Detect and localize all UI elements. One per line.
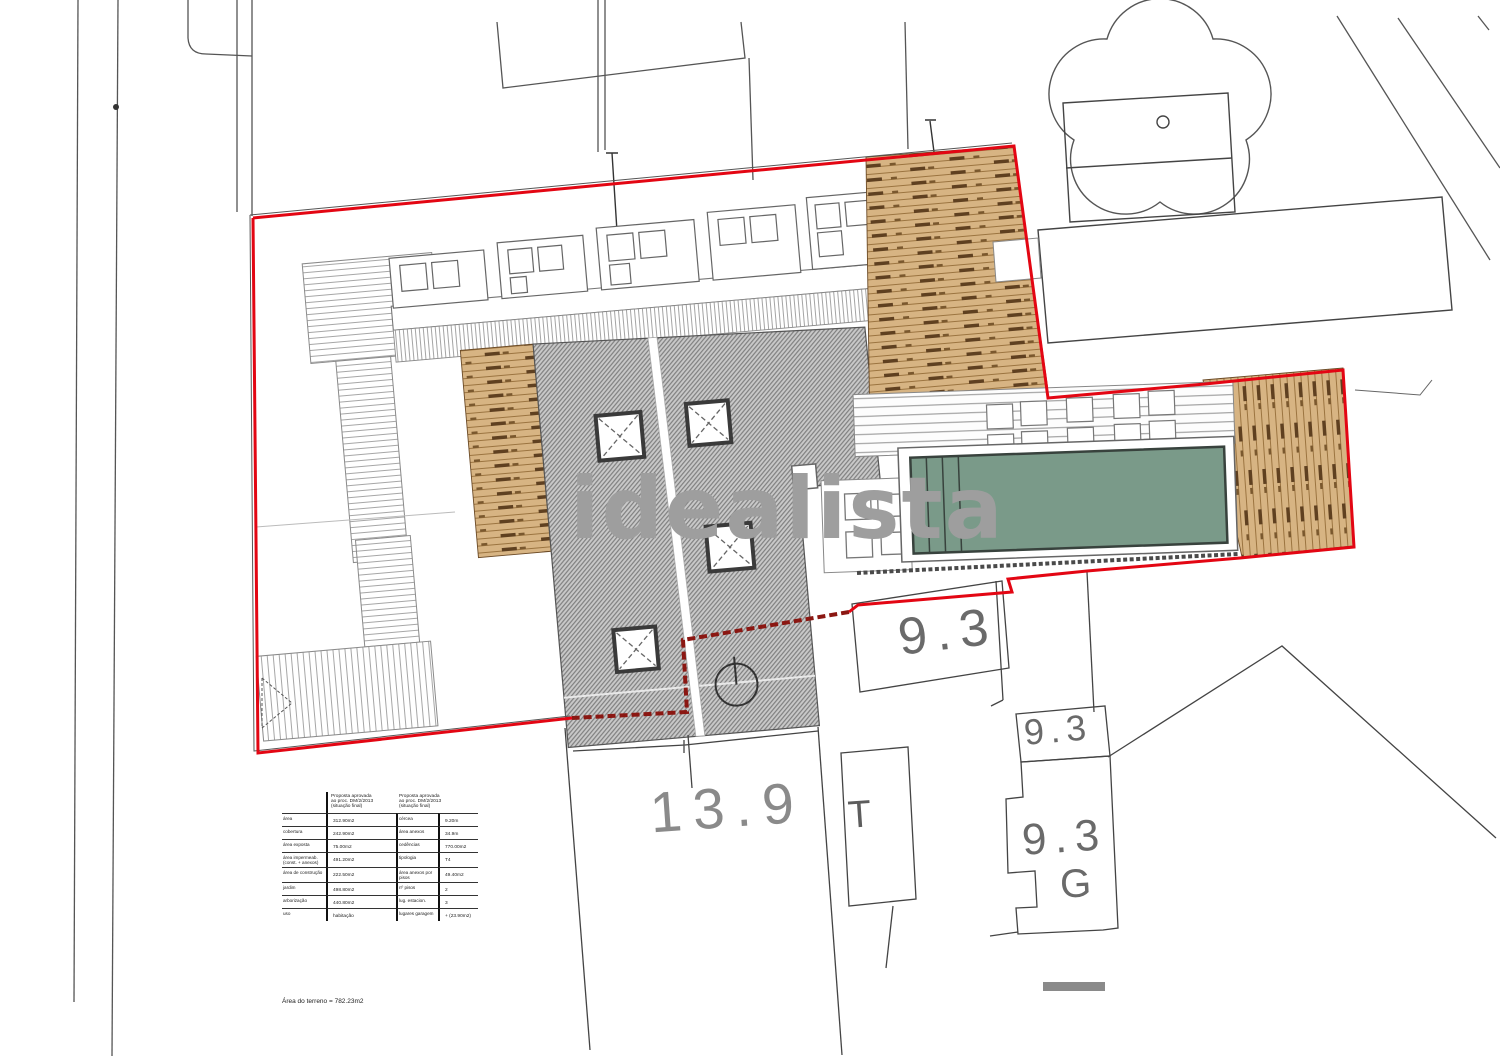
idealista-watermark: idealista <box>570 466 1005 552</box>
walkway-left <box>336 357 408 563</box>
tree-canopy <box>1049 0 1271 214</box>
table-header-right: Proposta aprovada ao proc. DM/2/2013 (si… <box>396 792 478 813</box>
walkway-bottom <box>256 641 438 741</box>
garage-label: G <box>1059 863 1092 905</box>
transformer-label: T <box>847 795 873 835</box>
parcel-label-top: 9.3 <box>895 600 1000 664</box>
walkway-lower-stem <box>355 536 420 655</box>
parcel-label-mid: 9.3 <box>1023 709 1094 751</box>
leader-line <box>1355 380 1432 395</box>
neighbour-buildings <box>1038 93 1452 343</box>
survey-point <box>113 104 119 110</box>
table-spacer <box>282 792 326 813</box>
parcel-label-bottom: 9.3 <box>1021 813 1109 863</box>
table-header-left: Proposta aprovada ao proc. DM/2/2013 (si… <box>326 792 396 813</box>
site-plan-canvas: 9.3 9.3 9.3 G T 13.9 idealista Proposta … <box>0 0 1500 1060</box>
terrain-area-note: Área do terreno = 782.23m2 <box>282 998 364 1005</box>
parcel-lines <box>256 512 1496 1055</box>
lot-number-label: 13.9 <box>648 775 807 843</box>
scale-bar <box>1043 982 1105 991</box>
areas-summary-table: Proposta aprovada ao proc. DM/2/2013 (si… <box>282 792 478 921</box>
deck-north-notch <box>993 238 1041 282</box>
